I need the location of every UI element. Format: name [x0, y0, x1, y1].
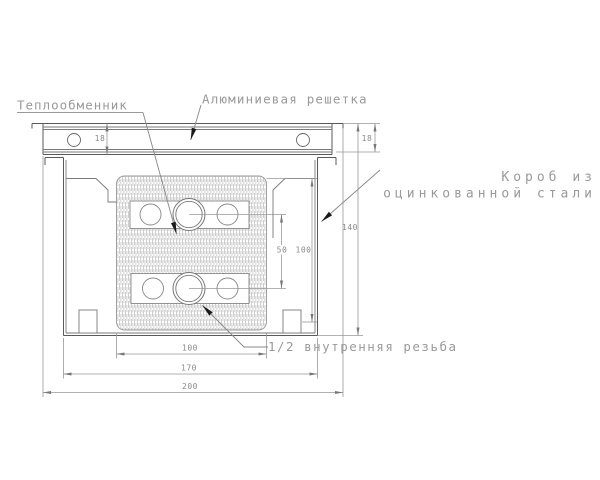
dim-box-width: 170 [181, 364, 197, 373]
label-steel-box-line1: Короб из [501, 170, 596, 185]
leader-steel-box [322, 170, 381, 222]
heat-exchanger-block [117, 176, 287, 330]
support-foot-right [283, 310, 301, 333]
leader-aluminum-grille [191, 105, 201, 140]
aluminum-grille-bar [32, 124, 343, 155]
label-thread: 1/2 внутренняя резьба [268, 339, 458, 354]
technical-drawing-canvas: 18 18 140 100 50 100 170 [0, 0, 600, 480]
label-heat-exchanger: Теплообменник [17, 98, 128, 113]
liner-profile-left [66, 179, 117, 203]
dim-overall-height: 140 [342, 223, 358, 232]
dim-pipe-spacing: 50 [277, 246, 288, 255]
dim-grille-width: 200 [182, 382, 198, 391]
grille-hole-right [297, 134, 310, 147]
labels: Теплообменник Алюминиевая решетка Короб … [17, 92, 596, 355]
support-foot-left [79, 310, 97, 333]
dim-exchanger-width: 100 [182, 344, 198, 353]
liner-profile-right [273, 179, 315, 239]
label-steel-box-line2: оцинкованной стали [383, 187, 596, 202]
label-aluminum-grille: Алюминиевая решетка [202, 92, 368, 107]
dim-grille-height-right: 18 [362, 134, 373, 143]
dim-grille-height-left: 18 [95, 134, 106, 143]
dim-inner-height: 100 [296, 246, 312, 255]
convector-section-drawing: 18 18 140 100 50 100 170 [0, 0, 600, 480]
grille-hole-left [68, 134, 81, 147]
